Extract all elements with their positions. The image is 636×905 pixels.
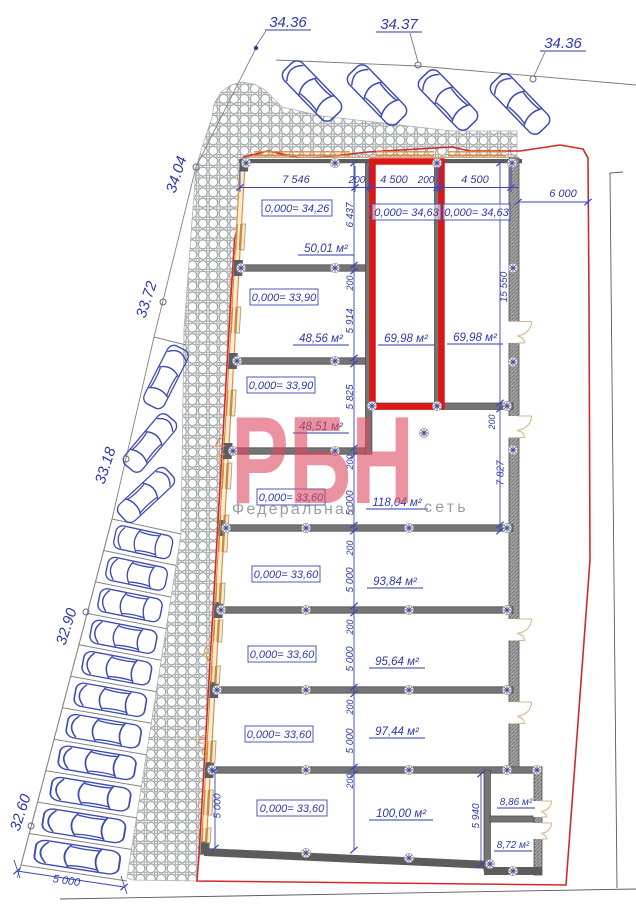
- svg-text:69,98 м²: 69,98 м²: [453, 332, 498, 344]
- svg-text:6 437: 6 437: [345, 202, 356, 227]
- svg-text:0,000= 34,63: 0,000= 34,63: [374, 207, 439, 219]
- svg-text:0,000= 34,26: 0,000= 34,26: [265, 203, 330, 215]
- svg-text:50,01 м²: 50,01 м²: [304, 243, 349, 255]
- svg-text:200: 200: [345, 699, 355, 715]
- svg-text:34.36: 34.36: [269, 14, 307, 31]
- svg-text:сеть: сеть: [424, 499, 469, 516]
- svg-text:Федеральная: Федеральная: [232, 501, 357, 518]
- svg-text:200: 200: [487, 414, 497, 430]
- svg-text:5 000: 5 000: [213, 793, 224, 818]
- svg-text:0,000= 33,60: 0,000= 33,60: [250, 649, 315, 661]
- svg-text:6 000: 6 000: [549, 188, 577, 200]
- svg-text:5 940: 5 940: [471, 803, 482, 828]
- svg-text:93,84 м²: 93,84 м²: [373, 576, 418, 588]
- svg-text:7 827: 7 827: [496, 460, 507, 485]
- svg-text:0,000= 34,63: 0,000= 34,63: [444, 207, 509, 219]
- svg-text:95,64 м²: 95,64 м²: [375, 656, 420, 668]
- svg-text:5 000: 5 000: [345, 567, 356, 592]
- svg-text:34.36: 34.36: [544, 35, 582, 52]
- svg-text:34.37: 34.37: [380, 16, 418, 33]
- svg-text:200: 200: [348, 175, 366, 186]
- svg-text:200: 200: [345, 540, 355, 556]
- svg-text:200: 200: [417, 175, 435, 186]
- svg-text:69,98 м²: 69,98 м²: [384, 333, 429, 345]
- svg-text:200: 200: [345, 275, 355, 291]
- svg-text:200: 200: [345, 619, 355, 635]
- svg-text:0,000= 33,90: 0,000= 33,90: [252, 292, 317, 304]
- svg-text:7 546: 7 546: [282, 174, 310, 186]
- svg-text:0,000= 33,60: 0,000= 33,60: [254, 569, 319, 581]
- svg-text:4 500: 4 500: [461, 174, 489, 186]
- svg-text:5 914: 5 914: [345, 308, 356, 333]
- svg-text:0,000= 33,60: 0,000= 33,60: [260, 803, 325, 815]
- svg-text:48,56 м²: 48,56 м²: [299, 333, 344, 345]
- svg-text:4 500: 4 500: [380, 174, 408, 186]
- svg-text:97,44 м²: 97,44 м²: [375, 726, 420, 738]
- svg-text:0,000= 33,90: 0,000= 33,90: [249, 380, 314, 392]
- svg-text:200: 200: [345, 773, 355, 789]
- svg-text:8,72 м²: 8,72 м²: [497, 840, 530, 851]
- svg-text:15 550: 15 550: [499, 271, 510, 302]
- svg-text:0,000= 33,60: 0,000= 33,60: [247, 729, 312, 741]
- svg-text:5 000: 5 000: [345, 646, 356, 671]
- svg-text:8,86 м²: 8,86 м²: [500, 797, 533, 808]
- svg-text:5 000: 5 000: [345, 728, 356, 753]
- svg-text:100,00 м²: 100,00 м²: [376, 808, 427, 820]
